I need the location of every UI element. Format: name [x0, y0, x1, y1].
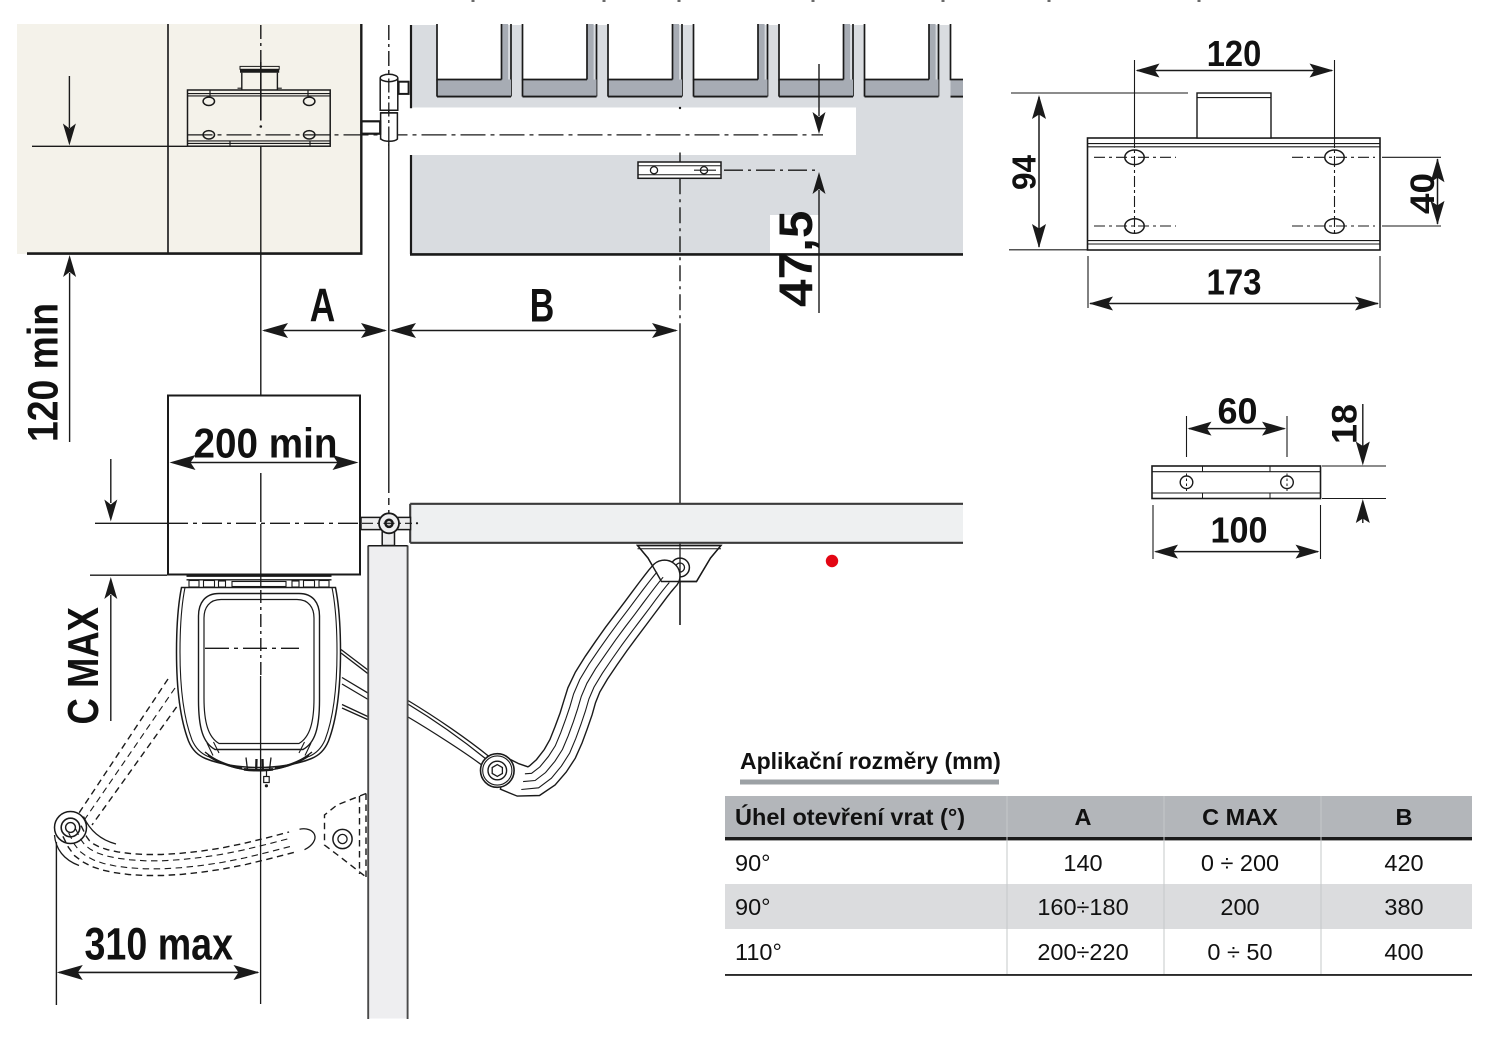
svg-text:0 ÷ 50: 0 ÷ 50 — [1207, 939, 1272, 965]
svg-text:A: A — [1075, 804, 1092, 830]
svg-text:C MAX: C MAX — [59, 607, 108, 725]
svg-text:173: 173 — [1207, 262, 1262, 303]
svg-text:B: B — [530, 279, 555, 332]
svg-text:120 min: 120 min — [20, 303, 68, 442]
svg-text:380: 380 — [1384, 894, 1423, 920]
svg-text:40: 40 — [1404, 173, 1442, 214]
svg-text:120: 120 — [1207, 33, 1262, 74]
svg-text:160÷180: 160÷180 — [1037, 894, 1128, 920]
svg-text:Úhel otevření vrat (°): Úhel otevření vrat (°) — [735, 803, 965, 830]
svg-text:200 min: 200 min — [194, 420, 338, 467]
svg-text:18: 18 — [1326, 404, 1365, 444]
svg-text:200÷220: 200÷220 — [1037, 939, 1128, 965]
svg-text:200: 200 — [1220, 894, 1259, 920]
svg-text:Aplikační rozměry (mm): Aplikační rozměry (mm) — [740, 748, 1001, 774]
svg-text:400: 400 — [1384, 939, 1423, 965]
svg-text:C MAX: C MAX — [1202, 804, 1278, 830]
svg-text:B: B — [1396, 804, 1413, 830]
svg-text:90°: 90° — [735, 894, 771, 920]
svg-text:140: 140 — [1063, 850, 1102, 876]
svg-text:94: 94 — [1006, 154, 1043, 190]
svg-text:0 ÷ 200: 0 ÷ 200 — [1201, 850, 1279, 876]
svg-text:47,5: 47,5 — [769, 211, 822, 308]
svg-text:A: A — [310, 279, 336, 332]
svg-text:60: 60 — [1218, 391, 1258, 432]
svg-text:110°: 110° — [735, 939, 782, 965]
svg-text:310 max: 310 max — [85, 919, 234, 970]
svg-text:100: 100 — [1211, 510, 1268, 551]
svg-text:90°: 90° — [735, 850, 771, 876]
svg-text:420: 420 — [1384, 850, 1423, 876]
